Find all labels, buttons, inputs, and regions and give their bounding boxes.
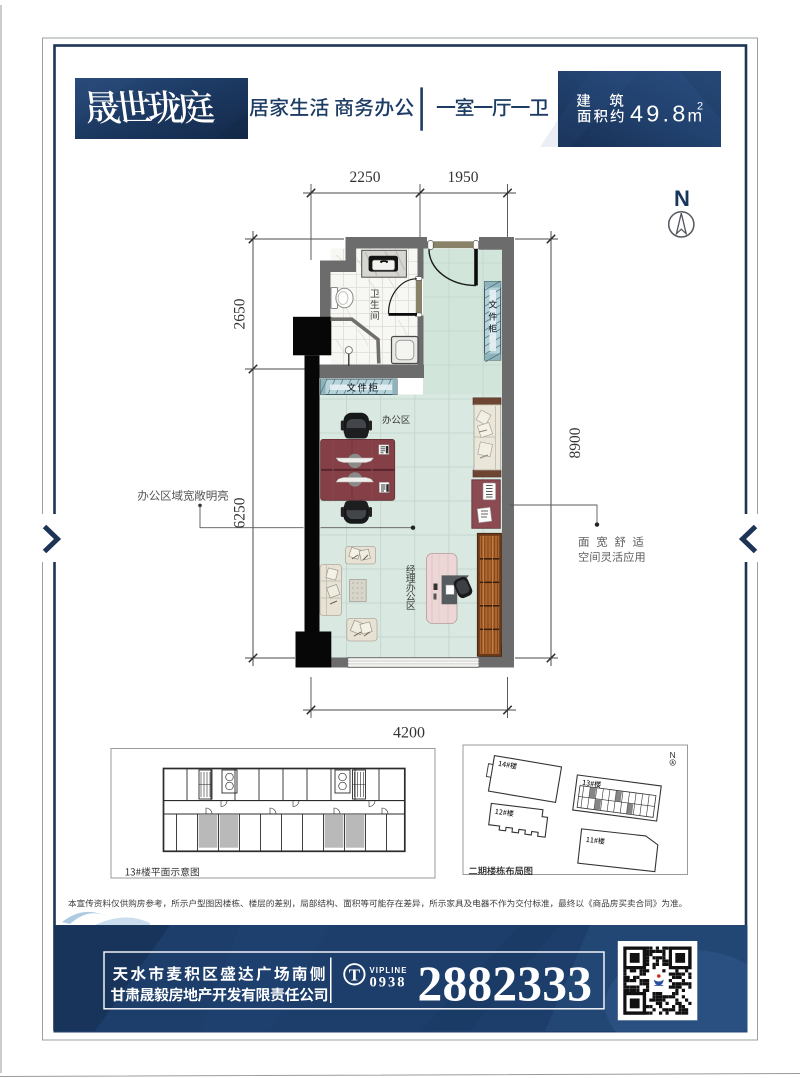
- svg-text:VIPLINE: VIPLINE: [370, 966, 408, 975]
- svg-text:8900: 8900: [567, 427, 584, 458]
- svg-text:1950: 1950: [448, 169, 479, 186]
- svg-text:2250: 2250: [350, 169, 381, 186]
- svg-text:2882333: 2882333: [418, 956, 593, 1011]
- svg-text:6250: 6250: [232, 497, 249, 528]
- svg-text:49.8: 49.8: [630, 101, 689, 127]
- svg-text:0938: 0938: [370, 975, 407, 991]
- svg-text:2650: 2650: [232, 298, 249, 329]
- svg-text:T: T: [349, 965, 361, 984]
- svg-text:N: N: [674, 186, 690, 211]
- svg-text:4200: 4200: [393, 725, 425, 742]
- svg-text:N: N: [670, 750, 676, 760]
- svg-text:2: 2: [697, 101, 703, 113]
